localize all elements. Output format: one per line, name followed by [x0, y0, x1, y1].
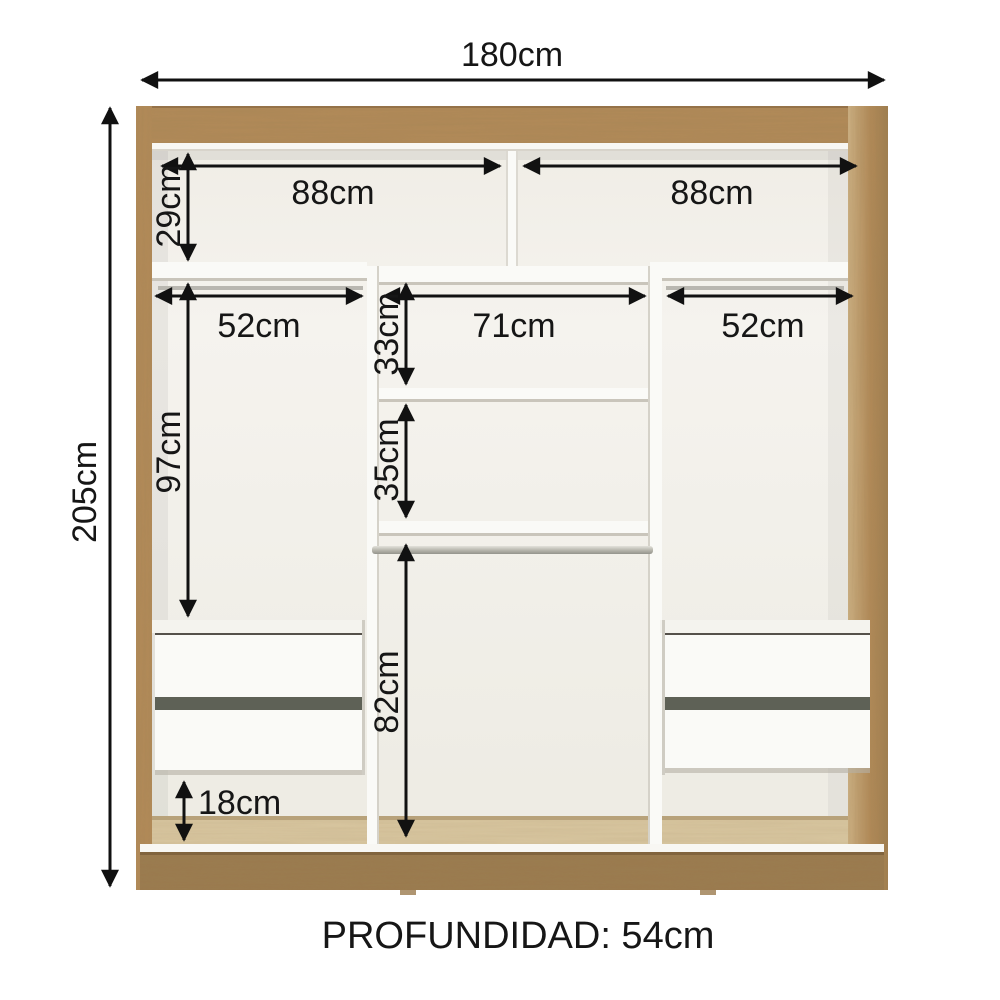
right-drawer-1 [662, 633, 870, 697]
dim-label-under-drawer-gap: 18cm [198, 784, 281, 822]
left-drawer-gap [155, 697, 364, 710]
right-drawer-side-edge [662, 620, 665, 775]
center-top-shelf [367, 266, 660, 282]
right-drawer-gap [662, 697, 870, 710]
right-drawer-top-panel [660, 620, 870, 633]
center-hanging-rod [372, 546, 653, 554]
left-drawer-side-edge [362, 620, 365, 775]
foot-left [400, 890, 416, 895]
center-shelf-lower-shadow [379, 533, 648, 536]
top-panel-grain [136, 106, 888, 143]
dim-label-center-width: 71cm [472, 307, 555, 345]
base-plinth-edge [140, 852, 884, 855]
top-center-divider-shadow-r [516, 151, 518, 272]
dim-label-total-height: 205cm [66, 441, 104, 543]
left-drawer-unit [152, 620, 365, 775]
dim-label-center-middle-height: 35cm [368, 418, 406, 501]
dim-label-right-rod-width: 52cm [721, 307, 804, 345]
dim-label-total-width: 180cm [461, 36, 563, 74]
center-top-shelf-shadow [367, 282, 660, 285]
dim-label-left-rod-width: 52cm [217, 307, 300, 345]
wardrobe-dimension-diagram: 180cm 205cm 88cm 88cm 29cm 52cm 71cm 52c… [0, 0, 1000, 1000]
right-shelf [650, 262, 848, 278]
dim-label-top-left-width: 88cm [291, 174, 374, 212]
dim-label-top-shelf-height: 29cm [150, 164, 188, 247]
left-drawer-top-panel [152, 620, 365, 633]
dim-label-center-upper-height: 33cm [368, 292, 406, 375]
right-drawer-under-shadow [662, 768, 870, 773]
top-rail-shadow [140, 149, 884, 151]
center-column-right-wall-shadow [648, 266, 650, 844]
left-shelf [152, 262, 367, 278]
bottom-rail [140, 844, 884, 853]
dim-label-left-hanging-height: 97cm [150, 410, 188, 493]
right-drawer-2 [662, 710, 870, 768]
top-panel-edge [136, 106, 888, 108]
left-drawer-1 [155, 633, 364, 697]
top-center-divider-shadow-l [506, 151, 508, 272]
center-column-right-wall [648, 266, 662, 844]
left-drawer-1-edge [155, 633, 364, 635]
left-shelf-shadow [152, 278, 367, 281]
interior-top-shadow [152, 150, 848, 160]
foot-right [700, 890, 716, 895]
right-shelf-shadow [650, 278, 848, 281]
diagram-svg: 180cm 205cm 88cm 88cm 29cm 52cm 71cm 52c… [0, 0, 1000, 1000]
dim-label-top-right-width: 88cm [670, 174, 753, 212]
left-drawer-under-shadow [155, 770, 364, 775]
right-hanging-rod [666, 286, 844, 290]
right-drawer-unit [660, 620, 870, 775]
base-plinth-grain [140, 852, 884, 890]
left-drawer-2 [155, 710, 364, 770]
dim-label-center-hanging-height: 82cm [368, 650, 406, 733]
right-drawer-1-edge [662, 633, 870, 635]
depth-label: PROFUNDIDAD: 54cm [322, 915, 715, 957]
center-shelf-upper-shadow [379, 399, 648, 402]
